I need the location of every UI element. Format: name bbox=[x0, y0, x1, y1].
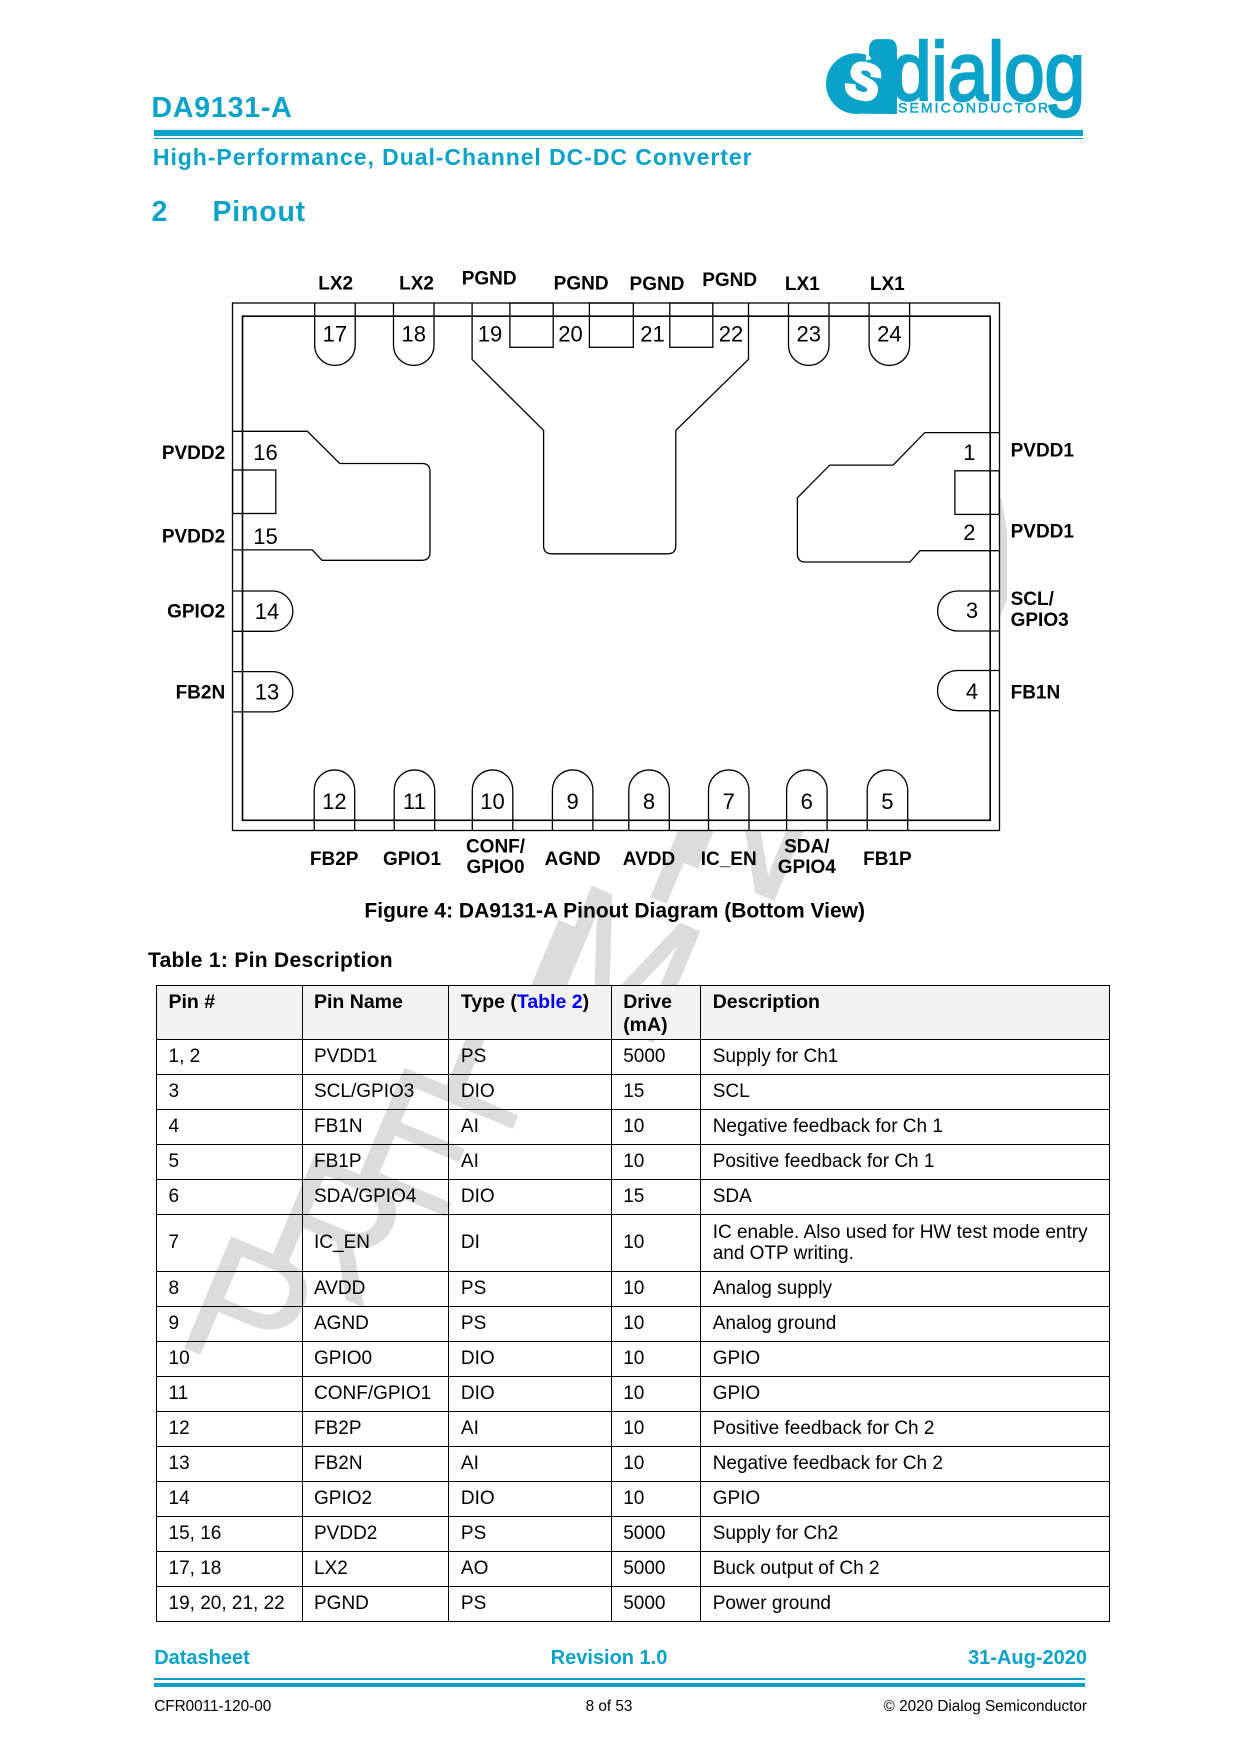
svg-text:12: 12 bbox=[322, 789, 346, 814]
svg-text:LX1: LX1 bbox=[870, 274, 905, 295]
svg-text:SCL/: SCL/ bbox=[1011, 589, 1055, 610]
svg-text:5: 5 bbox=[881, 789, 893, 814]
svg-text:GPIO0: GPIO0 bbox=[466, 857, 524, 878]
svg-text:IC_EN: IC_EN bbox=[701, 849, 757, 870]
svg-text:9: 9 bbox=[566, 789, 578, 814]
svg-text:20: 20 bbox=[558, 321, 582, 346]
svg-text:LX2: LX2 bbox=[318, 274, 353, 295]
svg-text:10: 10 bbox=[480, 789, 504, 814]
svg-text:Figure 4: DA9131-A Pinout Diag: Figure 4: DA9131-A Pinout Diagram (Botto… bbox=[364, 900, 865, 923]
svg-text:FB2P: FB2P bbox=[310, 849, 359, 870]
svg-text:LX2: LX2 bbox=[399, 274, 434, 295]
svg-text:6: 6 bbox=[801, 789, 813, 814]
svg-text:FB1P: FB1P bbox=[863, 849, 912, 870]
svg-text:PGND: PGND bbox=[462, 269, 517, 290]
svg-text:SDA/: SDA/ bbox=[784, 837, 830, 858]
svg-text:PVDD1: PVDD1 bbox=[1011, 441, 1075, 462]
svg-text:14: 14 bbox=[255, 599, 279, 624]
svg-text:21: 21 bbox=[640, 321, 664, 346]
svg-text:23: 23 bbox=[797, 321, 821, 346]
svg-text:GPIO3: GPIO3 bbox=[1011, 610, 1069, 631]
svg-text:AVDD: AVDD bbox=[623, 849, 675, 870]
svg-text:GPIO4: GPIO4 bbox=[778, 857, 837, 878]
svg-text:GPIO2: GPIO2 bbox=[167, 602, 225, 623]
svg-text:GPIO1: GPIO1 bbox=[383, 849, 442, 870]
svg-text:13: 13 bbox=[255, 680, 279, 705]
svg-text:CONF/: CONF/ bbox=[466, 837, 526, 858]
svg-text:1: 1 bbox=[963, 440, 975, 465]
svg-text:PGND: PGND bbox=[702, 270, 757, 291]
svg-text:LX1: LX1 bbox=[785, 274, 820, 295]
svg-text:3: 3 bbox=[966, 598, 978, 623]
svg-text:4: 4 bbox=[966, 679, 978, 704]
svg-text:8: 8 bbox=[643, 789, 655, 814]
svg-text:FB2N: FB2N bbox=[176, 683, 226, 704]
svg-text:22: 22 bbox=[719, 321, 743, 346]
svg-text:24: 24 bbox=[877, 321, 901, 346]
svg-text:7: 7 bbox=[723, 789, 735, 814]
svg-text:11: 11 bbox=[403, 789, 426, 814]
svg-text:PVDD1: PVDD1 bbox=[1011, 522, 1075, 543]
svg-text:PVDD2: PVDD2 bbox=[162, 443, 225, 464]
svg-text:PVDD2: PVDD2 bbox=[162, 527, 225, 548]
svg-text:AGND: AGND bbox=[545, 849, 601, 870]
svg-text:17: 17 bbox=[323, 321, 347, 346]
svg-text:PGND: PGND bbox=[630, 274, 685, 295]
svg-text:FB1N: FB1N bbox=[1011, 683, 1061, 704]
svg-text:18: 18 bbox=[402, 321, 426, 346]
svg-text:15: 15 bbox=[253, 524, 277, 549]
svg-text:19: 19 bbox=[478, 321, 502, 346]
svg-text:16: 16 bbox=[253, 440, 277, 465]
svg-text:2: 2 bbox=[963, 520, 975, 545]
svg-text:PGND: PGND bbox=[554, 274, 609, 295]
